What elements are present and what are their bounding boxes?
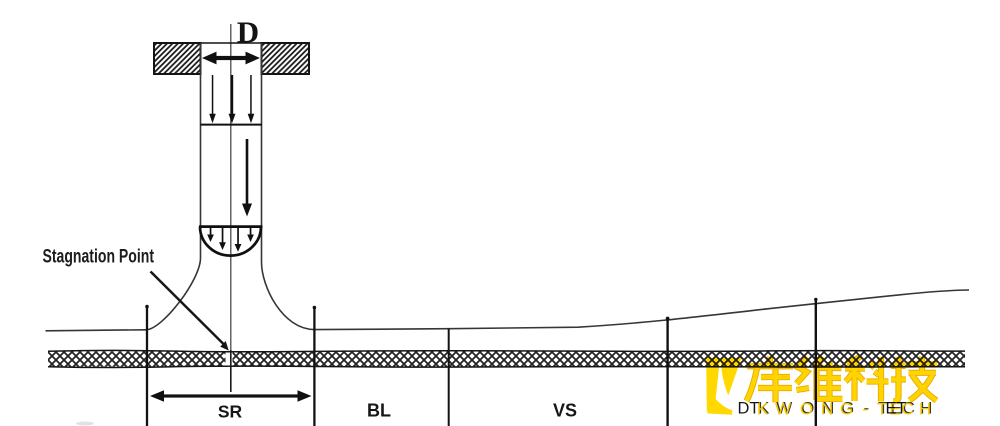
svg-text:-: -: [862, 400, 868, 419]
svg-text:D: D: [237, 15, 259, 50]
svg-text:VS: VS: [553, 401, 577, 421]
svg-text:SR: SR: [218, 402, 243, 422]
svg-text:N: N: [821, 400, 833, 419]
svg-text:G: G: [840, 400, 853, 419]
svg-text:E: E: [889, 400, 900, 419]
svg-text:T: T: [877, 400, 887, 419]
svg-text:W: W: [775, 400, 791, 419]
svg-text:O: O: [800, 400, 813, 419]
svg-text:Stagnation Point: Stagnation Point: [43, 246, 155, 268]
svg-text:BL: BL: [367, 401, 391, 421]
svg-text:C: C: [901, 400, 913, 419]
svg-text:K: K: [757, 400, 769, 419]
svg-text:H: H: [919, 400, 931, 419]
